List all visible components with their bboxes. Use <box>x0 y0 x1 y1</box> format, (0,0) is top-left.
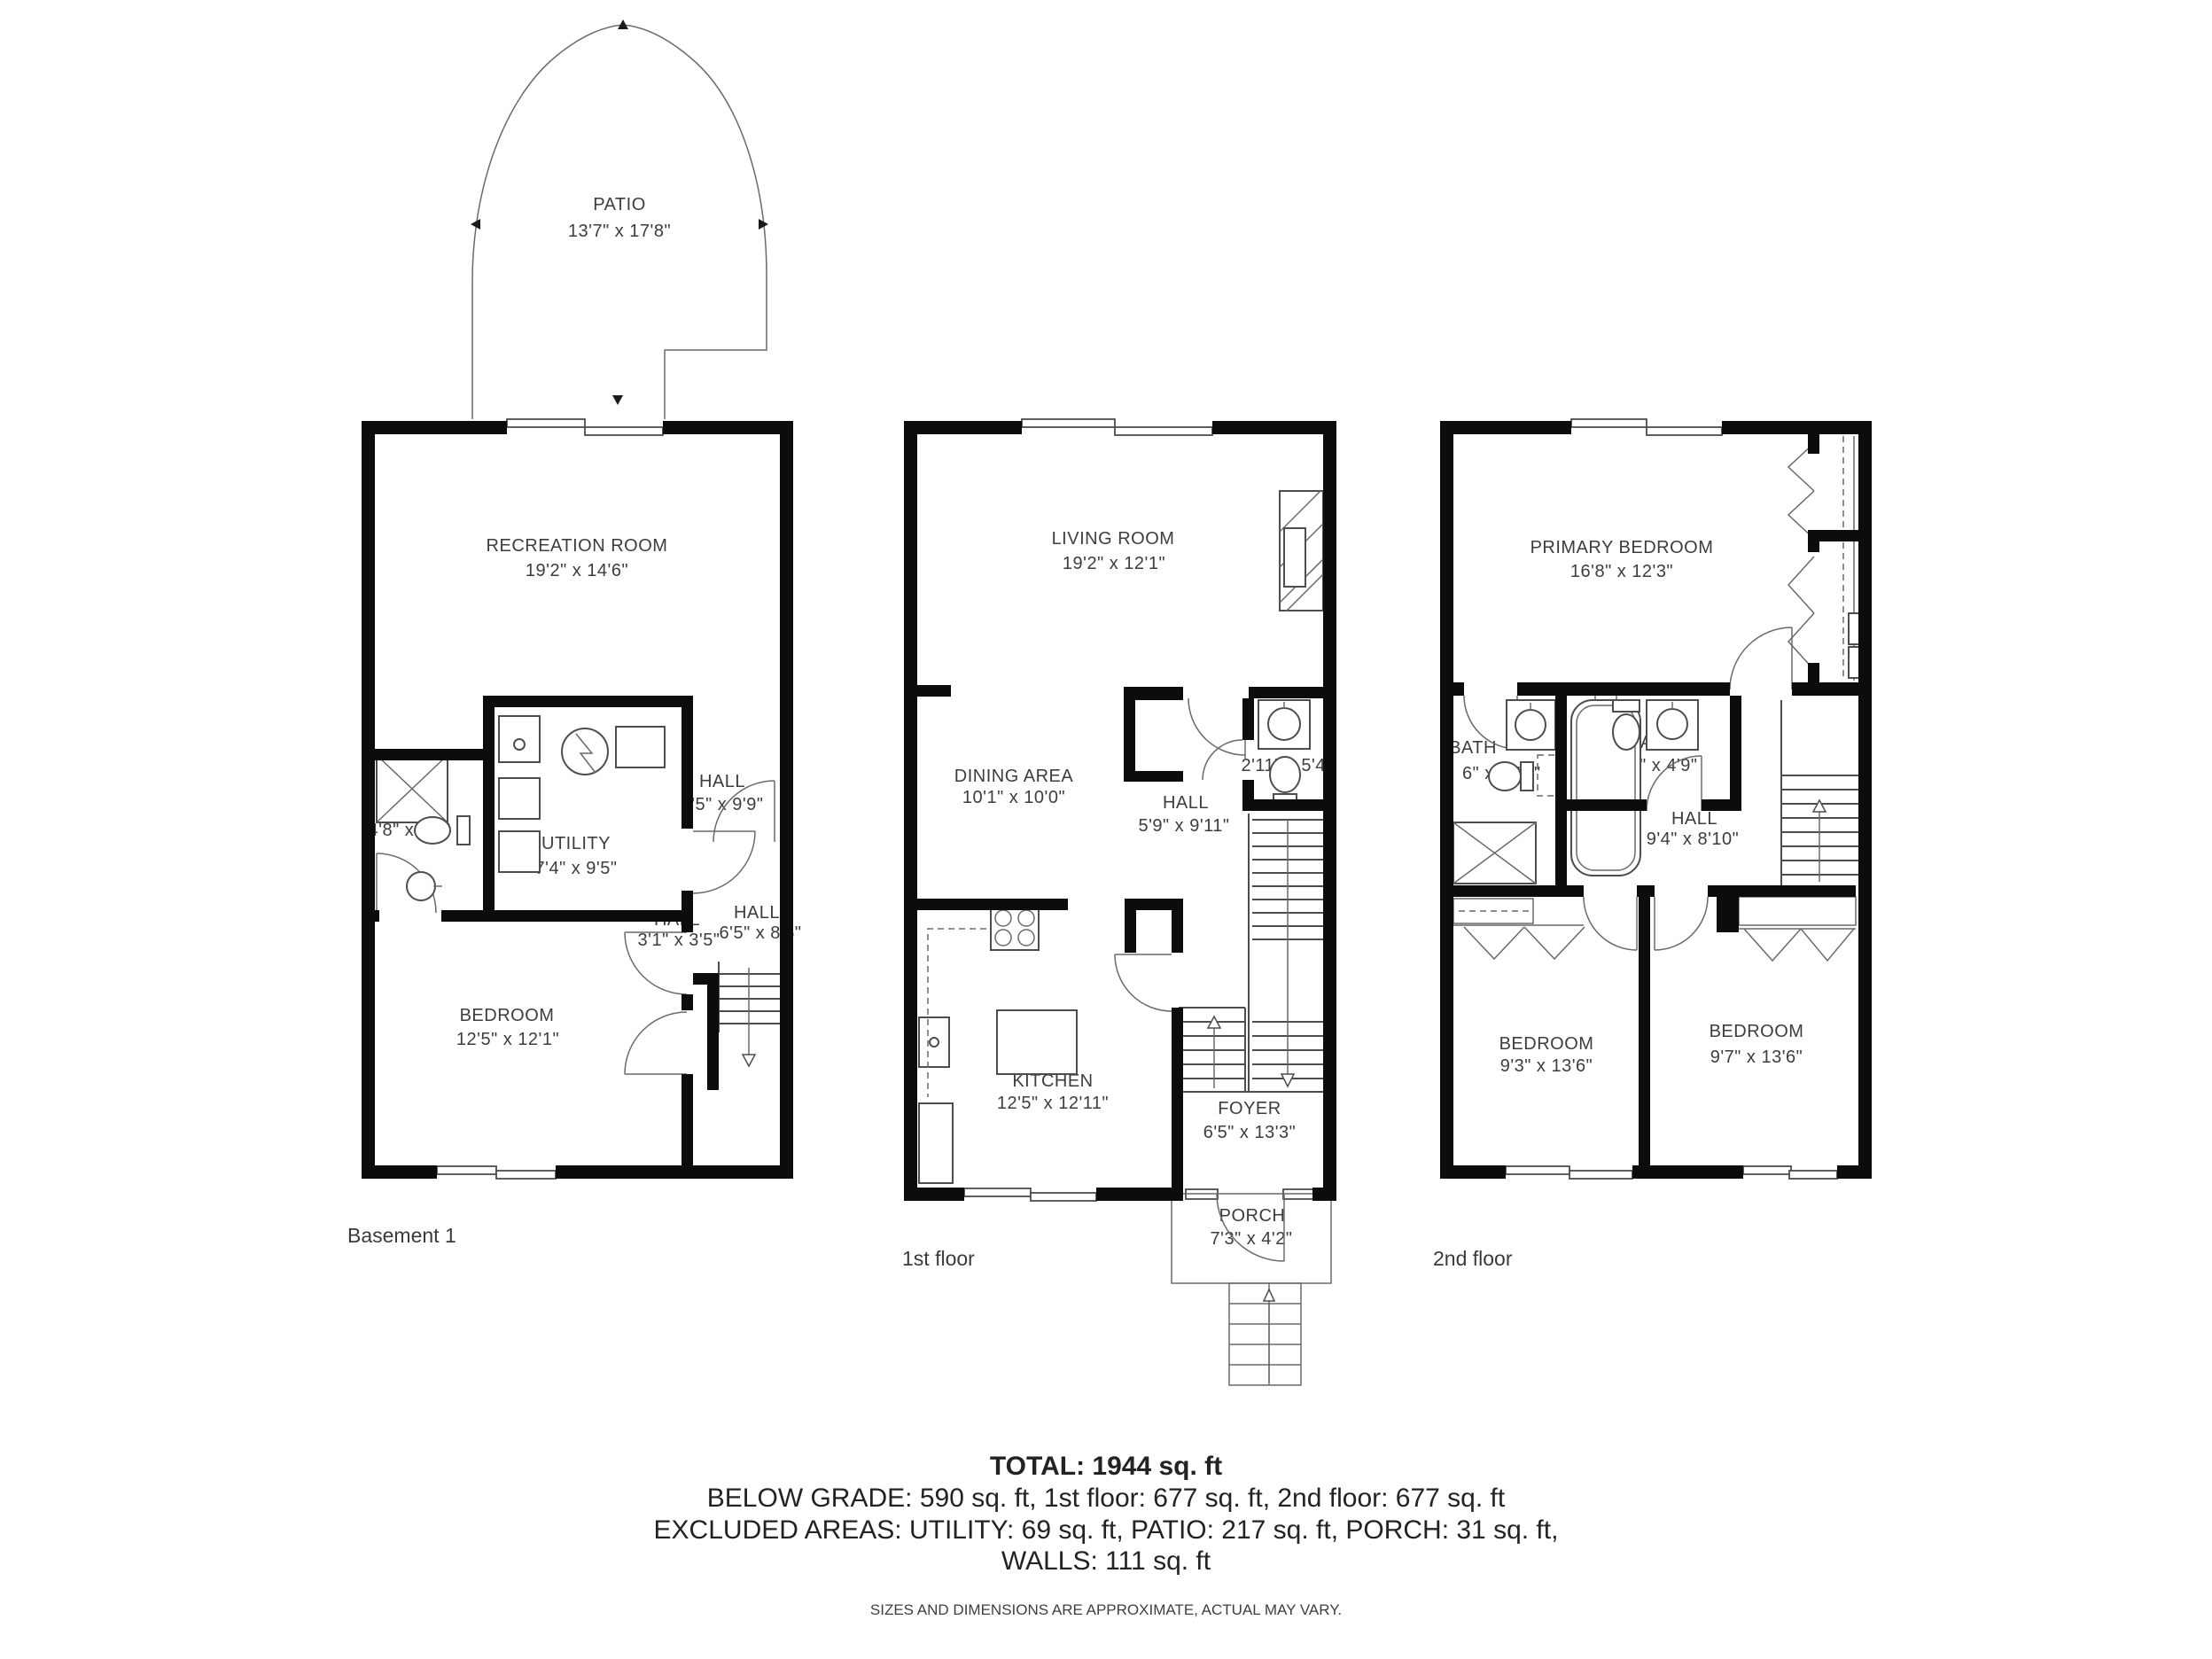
closet-door-chevron-icon <box>1801 929 1854 961</box>
room-dims: 19'2" x 12'1" <box>1063 554 1165 573</box>
room-dims: 10'1" x 10'0" <box>962 788 1065 807</box>
room-dims: 9'4" x 8'10" <box>1647 829 1740 849</box>
room-dims: 7'3" x 4'2" <box>1211 1229 1293 1249</box>
sink-icon <box>407 872 435 900</box>
closet-door-chevron-icon <box>1524 927 1585 959</box>
room-dims: 12'5" x 12'1" <box>456 1030 559 1049</box>
dryer-icon <box>499 831 540 872</box>
toilet-icon <box>1489 762 1521 791</box>
first-floor-stairs <box>1179 814 1323 1092</box>
arrow-down-icon <box>612 395 623 405</box>
floor-label-1st: 1st floor <box>902 1247 975 1270</box>
stairs-up-arrow-icon <box>1813 800 1826 812</box>
room-label: PRIMARY BEDROOM <box>1530 538 1714 557</box>
room-label: PATIO <box>593 195 646 214</box>
toilet-icon <box>1270 757 1300 792</box>
total-area: TOTAL: 1944 sq. ft <box>0 1452 2212 1482</box>
closet-door-chevron-icon <box>1744 929 1801 961</box>
room-dims: 6'5" x 13'3" <box>1203 1123 1297 1142</box>
excluded-areas: EXCLUDED AREAS: UTILITY: 69 sq. ft, PATI… <box>0 1515 2212 1546</box>
room-label: HALL <box>734 903 780 923</box>
room-dims: 9'3" x 13'6" <box>1500 1056 1593 1076</box>
second-floor-stairs <box>1781 700 1858 885</box>
room-label: HALL <box>1671 809 1717 829</box>
floorplan-drawing: PATIO 13'7" x 17'8" RECREATION ROOM 19'2… <box>0 0 2212 1659</box>
sink-icon <box>1268 708 1300 740</box>
room-label: BEDROOM <box>1710 1022 1804 1041</box>
floor-captions: Basement 1 1st floor 2nd floor <box>347 1224 1513 1270</box>
room-dims: 13'7" x 17'8" <box>568 222 671 241</box>
steps-up-arrow-icon <box>1264 1289 1274 1301</box>
floor-label-basement: Basement 1 <box>347 1224 456 1247</box>
room-dims: 12'5" x 12'11" <box>997 1094 1109 1113</box>
water-heater-icon <box>562 728 608 775</box>
room-dims: 6'5" x 9'9" <box>682 795 764 814</box>
room-dims: 5'9" x 9'11" <box>1138 816 1229 836</box>
closet-door-chevron-icon <box>1464 927 1524 959</box>
kitchen-island-icon <box>997 1010 1077 1074</box>
basement-fixtures <box>377 716 665 900</box>
sink-icon <box>1515 710 1546 740</box>
room-dims: 9'7" x 13'6" <box>1710 1048 1803 1067</box>
room-label: HALL <box>699 772 745 791</box>
area-breakdown: BELOW GRADE: 590 sq. ft, 1st floor: 677 … <box>0 1484 2212 1514</box>
room-label: FOYER <box>1218 1099 1281 1118</box>
room-label: DINING AREA <box>954 767 1074 786</box>
room-label: BEDROOM <box>1499 1034 1594 1054</box>
room-label: UTILITY <box>541 834 611 853</box>
sink-icon <box>1657 709 1687 739</box>
floor-label-2nd: 2nd floor <box>1433 1247 1513 1270</box>
basement-stairs <box>719 962 780 1066</box>
arrow-up-icon <box>618 19 628 29</box>
room-dims: 7'4" x 9'5" <box>535 859 618 878</box>
room-dims: 3'1" x 3'5" <box>638 931 720 950</box>
stairs-down-arrow-icon <box>743 1055 755 1066</box>
disclaimer: SIZES AND DIMENSIONS ARE APPROXIMATE, AC… <box>0 1601 2212 1619</box>
room-label: BEDROOM <box>460 1006 555 1025</box>
counter-icon <box>919 1103 953 1183</box>
floorplan-page: PATIO 13'7" x 17'8" RECREATION ROOM 19'2… <box>0 0 2212 1659</box>
washer-icon <box>499 778 540 819</box>
room-dims: 19'2" x 14'6" <box>526 561 628 580</box>
walls-area: WALLS: 111 sq. ft <box>0 1546 2212 1577</box>
room-label: LIVING ROOM <box>1052 529 1175 549</box>
appliance-icon <box>616 727 665 767</box>
closet-door-chevron-icon <box>1788 557 1814 613</box>
room-label: PORCH <box>1219 1206 1286 1226</box>
stairs-down-arrow-icon <box>1281 1074 1294 1087</box>
toilet-icon <box>415 817 450 844</box>
room-label: HALL <box>1163 793 1209 813</box>
toilet-icon <box>1613 700 1640 712</box>
room-dims: 16'8" x 12'3" <box>1570 562 1673 581</box>
room-label: RECREATION ROOM <box>487 536 668 556</box>
second-floor-fixtures <box>1453 693 1698 884</box>
patio-outline <box>471 19 768 419</box>
